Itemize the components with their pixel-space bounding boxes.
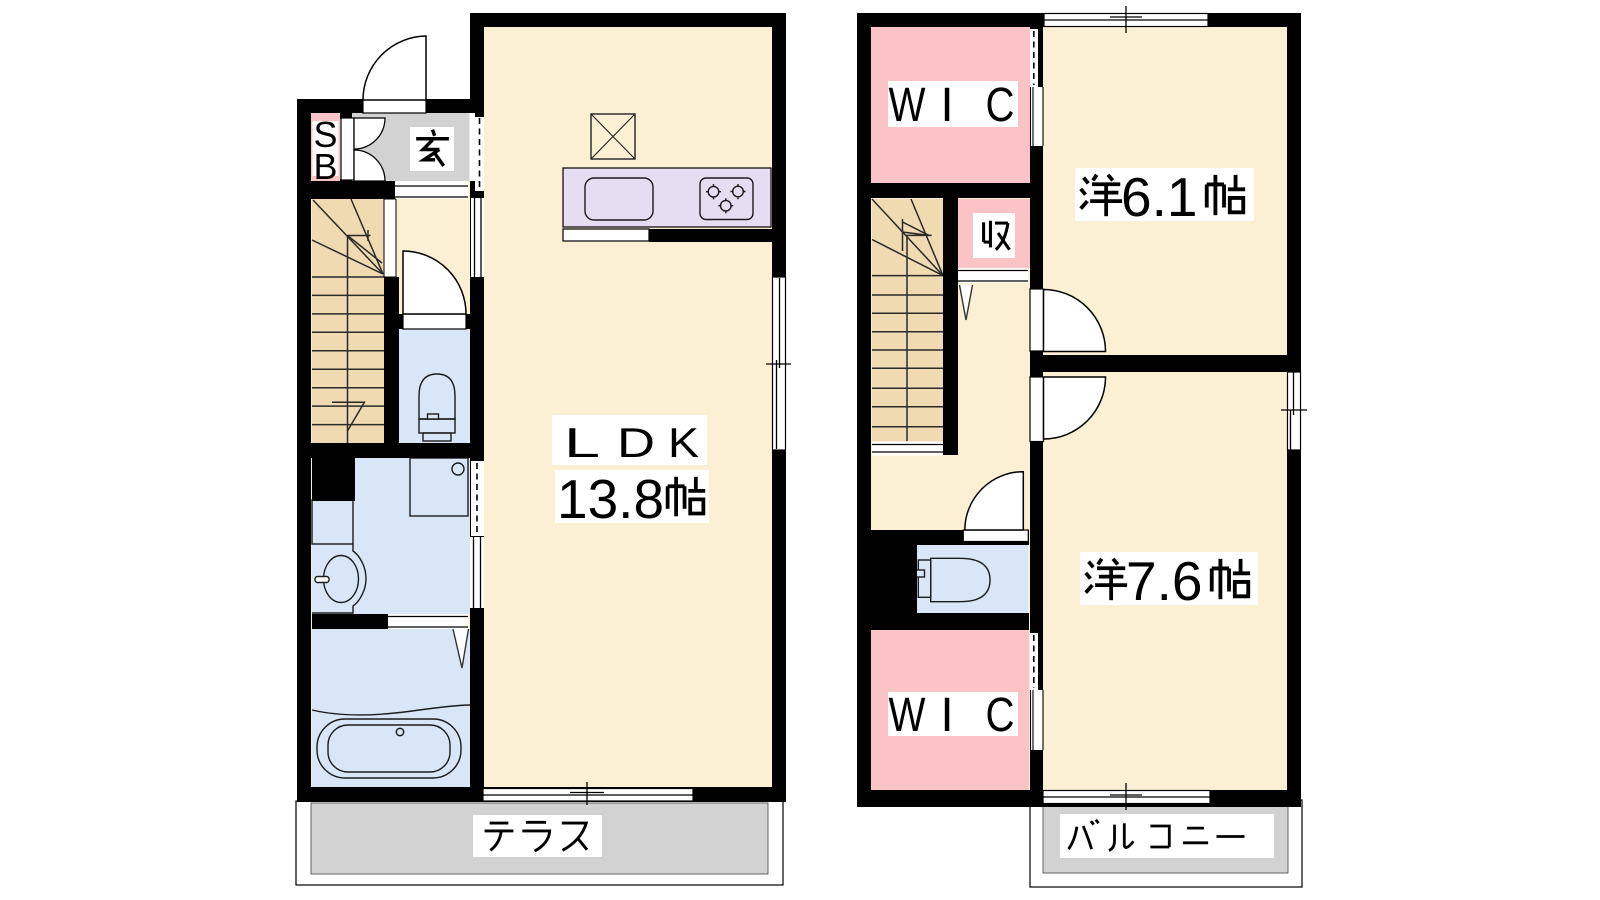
svg-text:I: I — [940, 79, 953, 132]
svg-text:B: B — [313, 146, 337, 187]
svg-text:K: K — [668, 419, 699, 466]
svg-text:6.1: 6.1 — [1121, 166, 1197, 228]
svg-text:7.6: 7.6 — [1126, 550, 1202, 612]
svg-text:L: L — [564, 419, 600, 466]
svg-text:D: D — [617, 419, 655, 466]
svg-text:W: W — [889, 689, 927, 742]
svg-text:W: W — [889, 79, 927, 132]
svg-text:C: C — [986, 79, 1015, 132]
svg-text:I: I — [940, 689, 953, 742]
svg-text:C: C — [986, 689, 1015, 742]
svg-text:13.8: 13.8 — [557, 468, 664, 530]
